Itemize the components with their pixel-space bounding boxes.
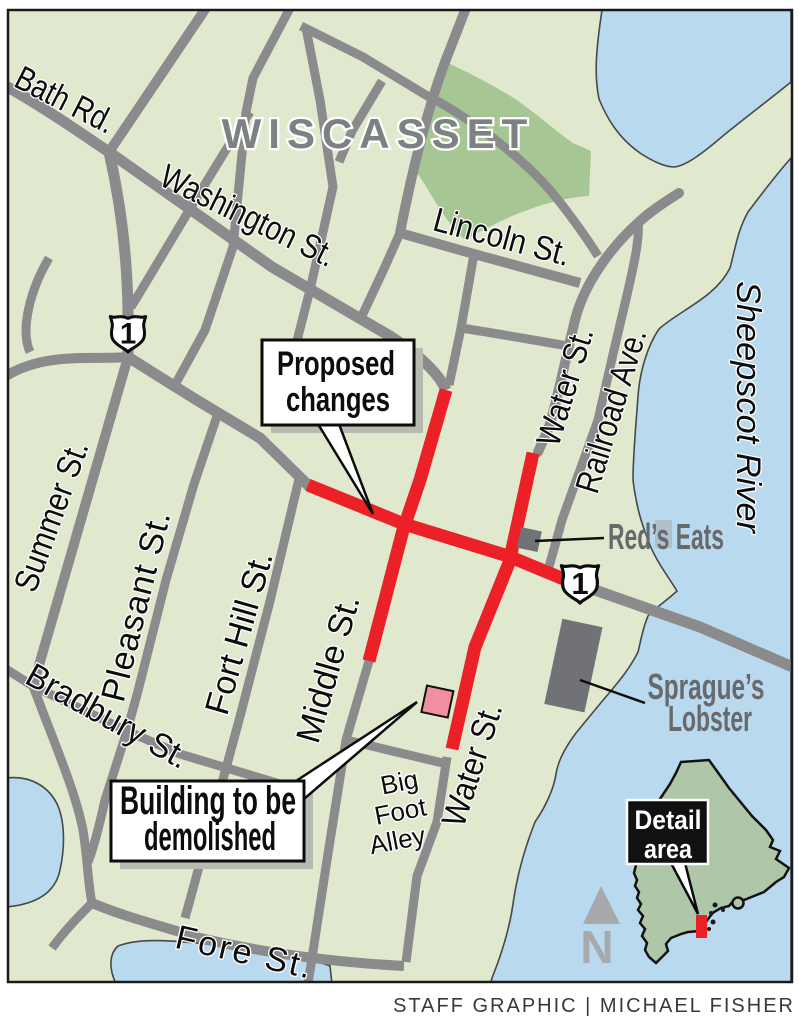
- svg-text:STAFF GRAPHIC | MICHAEL FISHER: STAFF GRAPHIC | MICHAEL FISHER: [393, 995, 795, 1017]
- svg-text:Lobster: Lobster: [668, 698, 752, 739]
- svg-text:Sheepscot River: Sheepscot River: [729, 281, 767, 535]
- svg-text:demolished: demolished: [144, 815, 276, 859]
- svg-text:WISCASSET: WISCASSET: [222, 110, 535, 157]
- svg-text:1: 1: [120, 317, 136, 350]
- svg-text:Detail: Detail: [635, 805, 702, 835]
- svg-text:Red’s Eats: Red’s Eats: [608, 516, 724, 557]
- svg-text:Proposed: Proposed: [277, 345, 395, 383]
- svg-text:1: 1: [571, 566, 588, 601]
- svg-text:area: area: [644, 834, 693, 864]
- svg-text:N: N: [580, 921, 613, 973]
- svg-text:changes: changes: [286, 381, 390, 419]
